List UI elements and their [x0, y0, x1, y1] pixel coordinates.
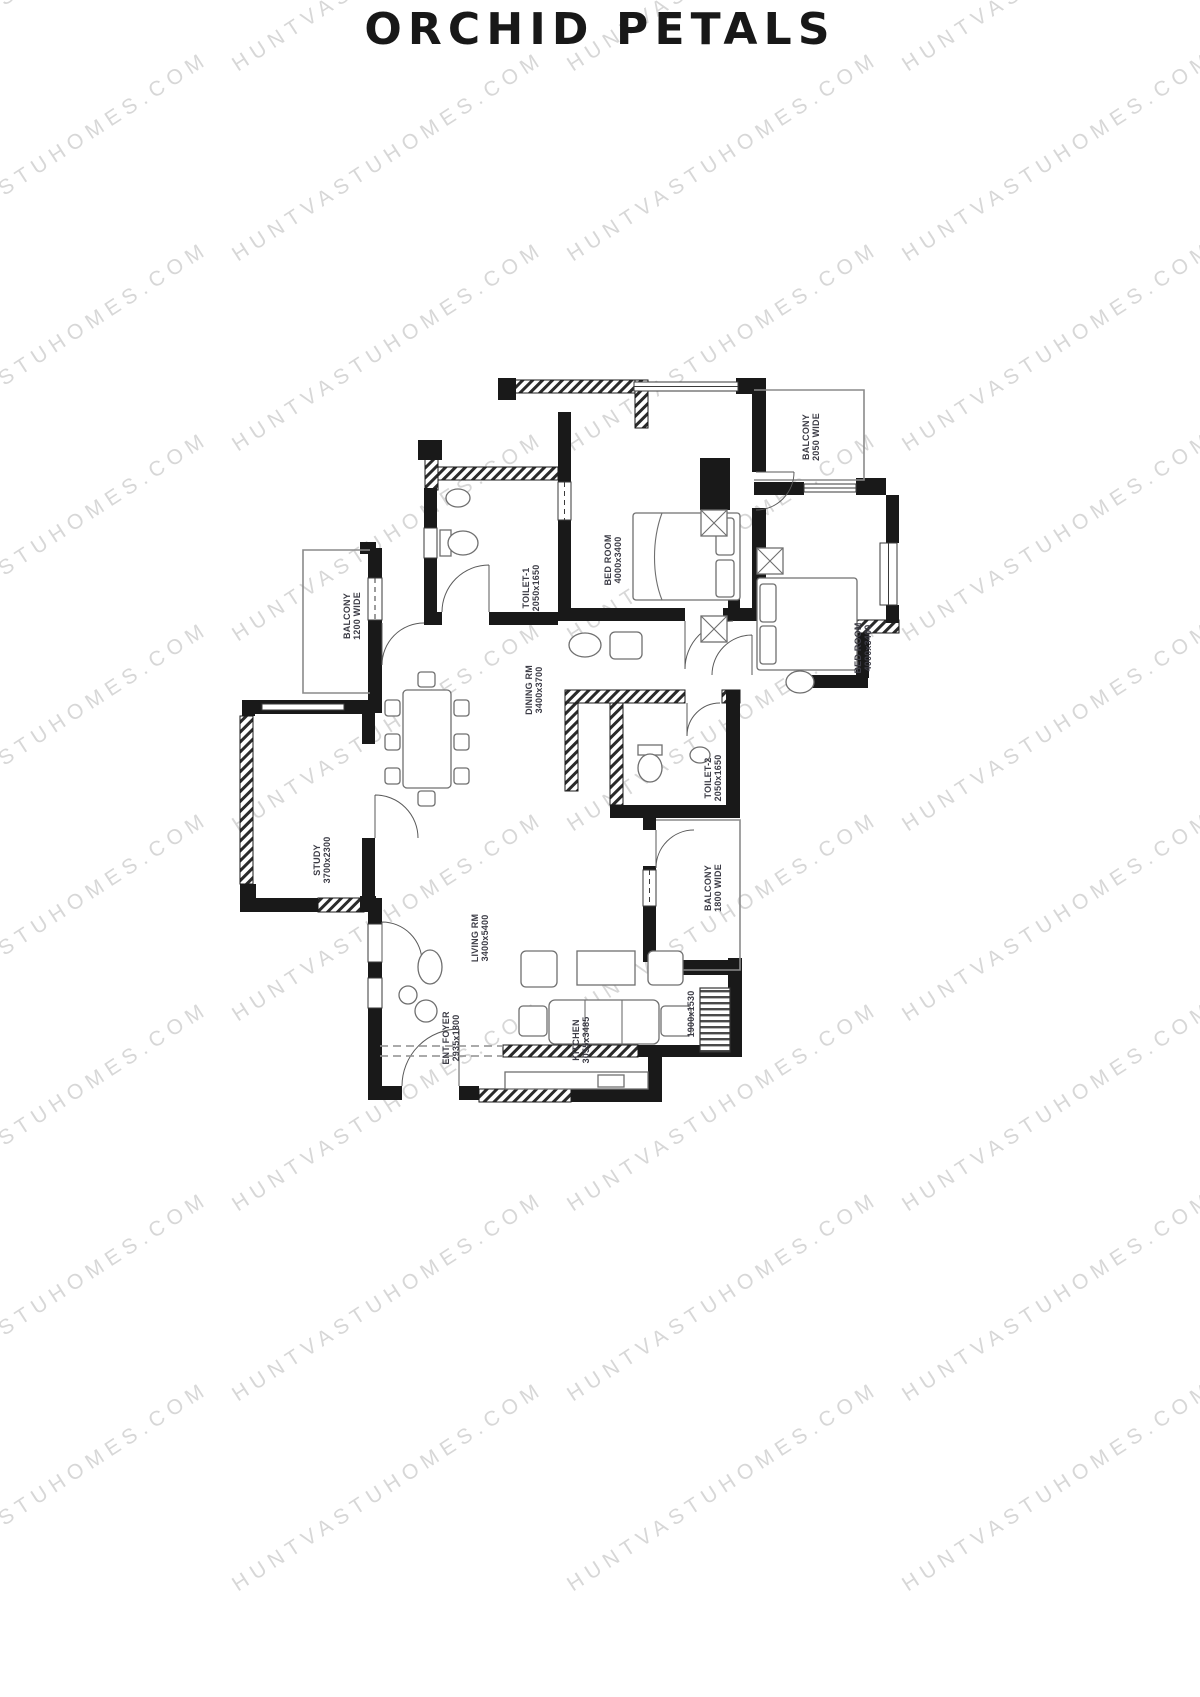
svg-text:4000x3400: 4000x3400: [613, 537, 623, 584]
svg-text:BED ROOM: BED ROOM: [603, 534, 613, 585]
svg-text:2050x1650: 2050x1650: [713, 755, 723, 802]
svg-text:BALCONY: BALCONY: [801, 414, 811, 460]
svg-text:DINING RM: DINING RM: [524, 665, 534, 715]
room-label-study: STUDY 3700x2300: [312, 837, 332, 884]
floor-plan: BED ROOM 4000x3400 BALCONY 2050 WIDE TOI…: [0, 0, 1200, 1697]
room-label-dining: DINING RM 3400x3700: [524, 665, 544, 715]
svg-text:STUDY: STUDY: [312, 844, 322, 876]
svg-text:TOILET-2: TOILET-2: [703, 758, 713, 799]
svg-text:3700x2300: 3700x2300: [322, 837, 332, 884]
room-label-kitchen: KITCHEN 3055x3485: [571, 1017, 591, 1064]
svg-text:2050 WIDE: 2050 WIDE: [811, 413, 821, 461]
room-label-balcony-left: BALCONY 1200 WIDE: [342, 592, 362, 640]
room-label-utility: 1900x1530: [686, 991, 696, 1038]
svg-text:KITCHEN: KITCHEN: [571, 1019, 581, 1060]
room-label-bedroom-2: BED ROOM 4000x3400: [853, 622, 873, 673]
page: { "page": { "title": "ORCHID PETALS" }, …: [0, 0, 1200, 1697]
svg-text:1900x1530: 1900x1530: [686, 991, 696, 1038]
svg-text:1800 WIDE: 1800 WIDE: [713, 864, 723, 912]
svg-text:ENT FOYER: ENT FOYER: [441, 1011, 451, 1065]
svg-text:BALCONY: BALCONY: [342, 593, 352, 639]
room-label-bedroom-1: BED ROOM 4000x3400: [603, 534, 623, 585]
room-label-toilet-2: TOILET-2 2050x1650: [703, 755, 723, 802]
svg-text:1200 WIDE: 1200 WIDE: [352, 592, 362, 640]
svg-text:3400x3700: 3400x3700: [534, 667, 544, 714]
svg-text:BALCONY: BALCONY: [703, 865, 713, 911]
svg-text:4000x3400: 4000x3400: [863, 625, 873, 672]
room-label-living: LIVING RM 3400x5400: [470, 914, 490, 962]
svg-text:2050x1650: 2050x1650: [531, 565, 541, 612]
room-label-ent-foyer: ENT FOYER 2935x1800: [441, 1011, 461, 1065]
svg-text:TOILET-1: TOILET-1: [521, 568, 531, 609]
room-label-toilet-1: TOILET-1 2050x1650: [521, 565, 541, 612]
svg-text:3055x3485: 3055x3485: [581, 1017, 591, 1064]
svg-text:LIVING RM: LIVING RM: [470, 914, 480, 962]
room-label-balcony-top: BALCONY 2050 WIDE: [801, 413, 821, 461]
page-title: ORCHID PETALS: [0, 4, 1200, 55]
svg-text:3400x5400: 3400x5400: [480, 915, 490, 962]
balcony-outlines: [303, 390, 864, 970]
room-label-balcony-right: BALCONY 1800 WIDE: [703, 864, 723, 912]
svg-text:BED ROOM: BED ROOM: [853, 622, 863, 673]
svg-text:2935x1800: 2935x1800: [451, 1015, 461, 1062]
